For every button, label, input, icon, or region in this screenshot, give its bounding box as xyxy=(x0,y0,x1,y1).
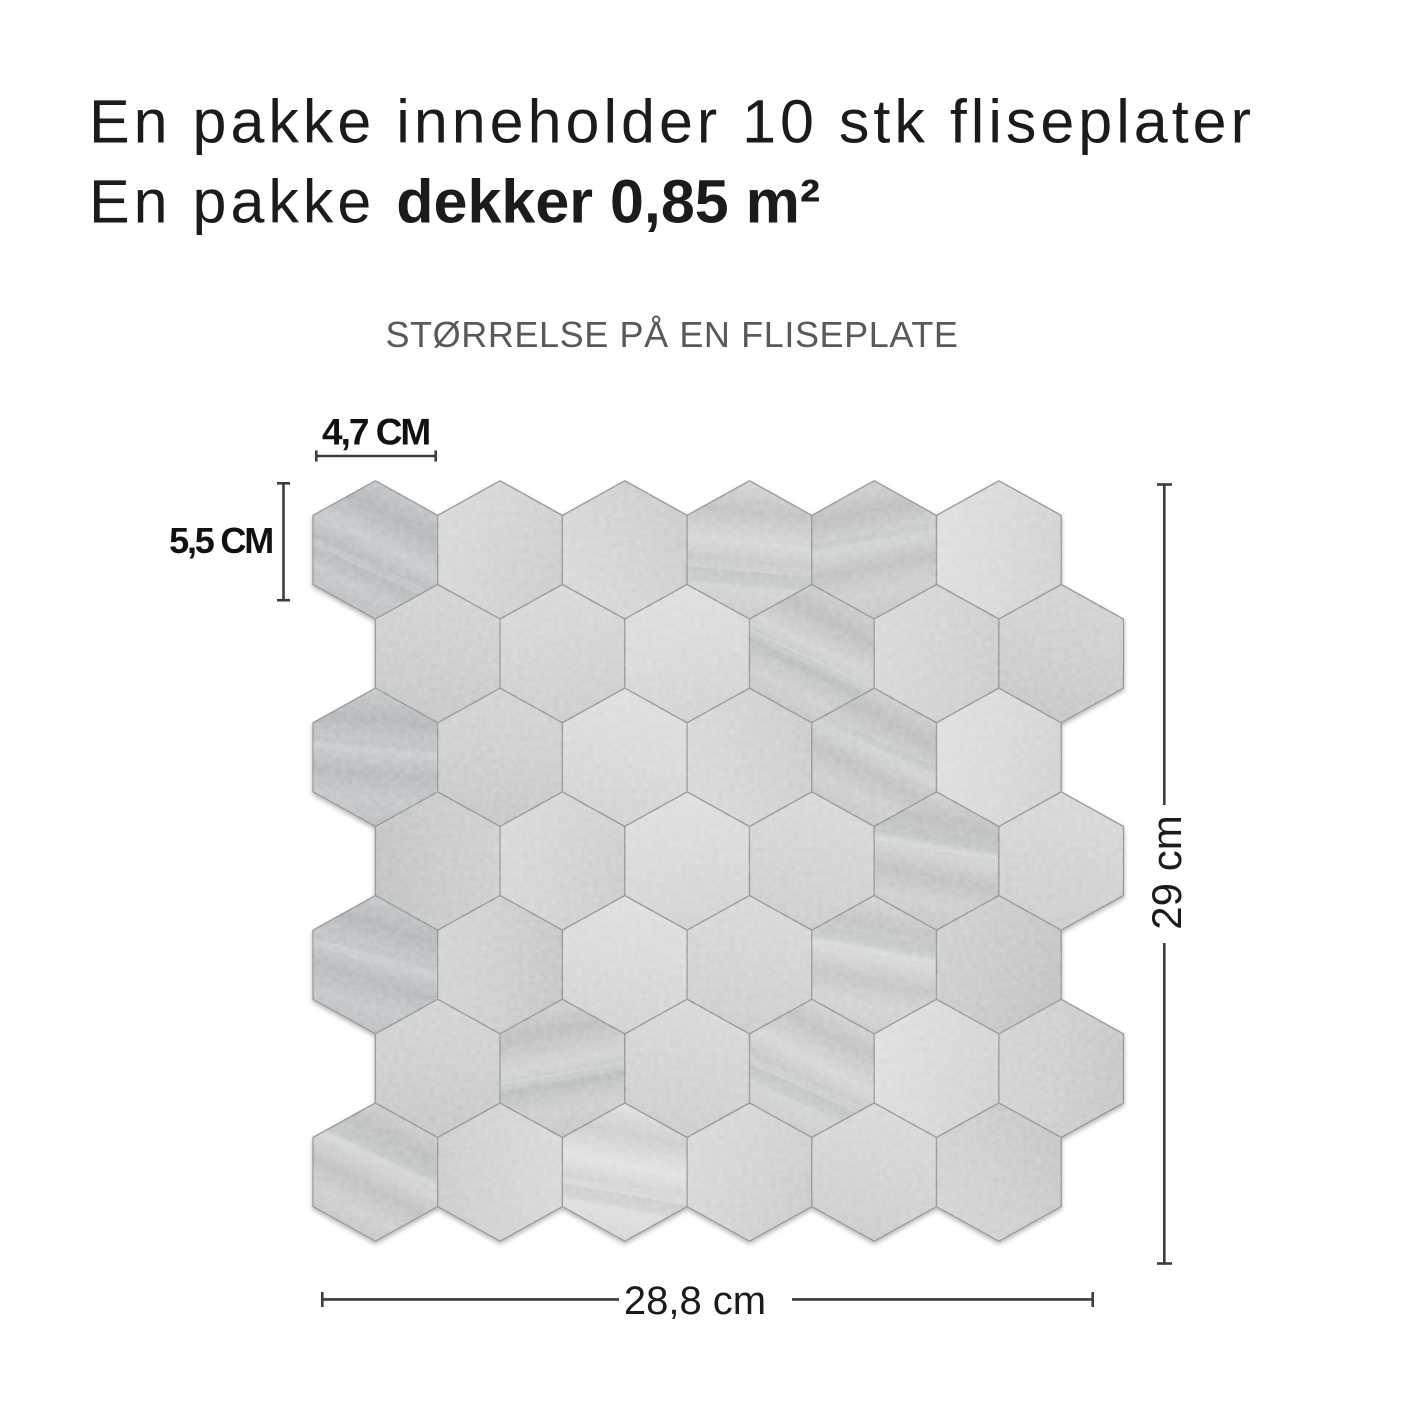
svg-text:4,7 CM: 4,7 CM xyxy=(322,412,429,453)
svg-text:En pakke dekker 0,85 m²: En pakke dekker 0,85 m² xyxy=(89,168,820,236)
svg-text:5,5 CM: 5,5 CM xyxy=(169,520,272,561)
svg-text:STØRRELSE PÅ EN FLISEPLATE: STØRRELSE PÅ EN FLISEPLATE xyxy=(385,314,958,355)
svg-text:29 cm: 29 cm xyxy=(1143,815,1190,929)
svg-text:En pakke inneholder 10 stk fli: En pakke inneholder 10 stk fliseplater xyxy=(89,87,1255,155)
svg-text:28,8 cm: 28,8 cm xyxy=(624,1279,766,1323)
